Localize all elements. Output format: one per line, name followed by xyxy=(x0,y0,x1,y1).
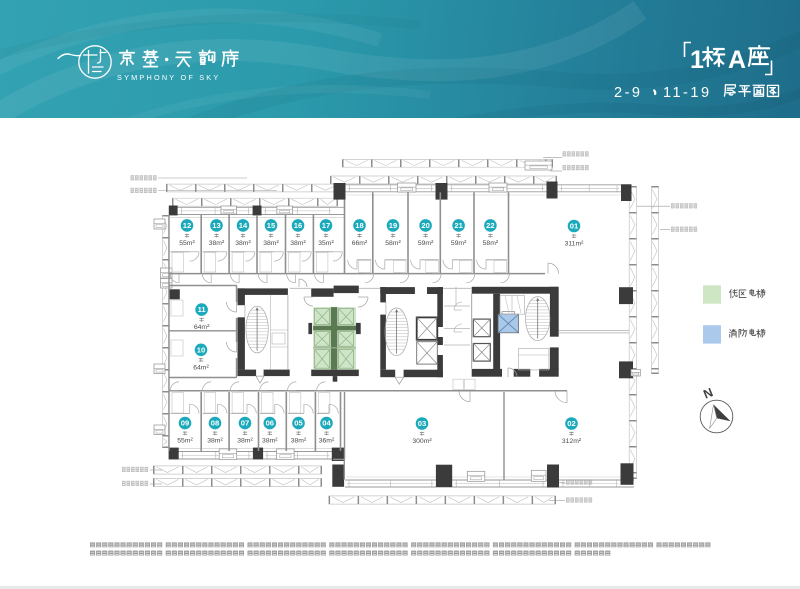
svg-text:19: 19 xyxy=(389,221,397,230)
svg-text:35m²: 35m² xyxy=(318,240,334,247)
svg-text:13: 13 xyxy=(212,221,220,230)
svg-text:38m²: 38m² xyxy=(290,240,306,247)
svg-text:300m²: 300m² xyxy=(412,438,432,445)
svg-text:38m²: 38m² xyxy=(262,438,278,445)
svg-text:59m²: 59m² xyxy=(418,240,434,247)
svg-text:66m²: 66m² xyxy=(352,240,368,247)
svg-text:02: 02 xyxy=(567,419,575,428)
svg-text:15: 15 xyxy=(267,221,276,230)
svg-text:11: 11 xyxy=(198,305,207,314)
svg-text:09: 09 xyxy=(181,419,189,428)
svg-text:38m²: 38m² xyxy=(237,438,253,445)
svg-text:58m²: 58m² xyxy=(483,240,499,247)
svg-text:03: 03 xyxy=(418,419,426,428)
svg-text:64m²: 64m² xyxy=(193,364,209,371)
svg-text:55m²: 55m² xyxy=(179,240,195,247)
svg-text:311m²: 311m² xyxy=(565,241,584,248)
svg-text:01: 01 xyxy=(570,222,579,231)
svg-text:38m²: 38m² xyxy=(235,240,251,247)
svg-text:18: 18 xyxy=(355,221,363,230)
svg-text:312m²: 312m² xyxy=(562,438,582,445)
svg-text:06: 06 xyxy=(266,419,274,428)
svg-text:38m²: 38m² xyxy=(209,240,225,247)
svg-text:04: 04 xyxy=(322,419,331,428)
svg-text:38m²: 38m² xyxy=(291,438,307,445)
svg-text:64m²: 64m² xyxy=(194,324,210,331)
svg-text:21: 21 xyxy=(454,221,463,230)
svg-text:22: 22 xyxy=(486,221,494,230)
svg-text:38m²: 38m² xyxy=(207,438,223,445)
svg-text:36m²: 36m² xyxy=(319,438,335,445)
svg-text:59m²: 59m² xyxy=(451,240,467,247)
svg-text:05: 05 xyxy=(294,419,303,428)
svg-text:12: 12 xyxy=(183,221,191,230)
svg-text:10: 10 xyxy=(197,345,205,354)
svg-text:08: 08 xyxy=(211,419,219,428)
svg-text:58m²: 58m² xyxy=(385,240,401,247)
svg-text:07: 07 xyxy=(241,419,249,428)
svg-text:17: 17 xyxy=(322,221,330,230)
svg-text:16: 16 xyxy=(294,221,302,230)
svg-text:14: 14 xyxy=(239,221,248,230)
svg-text:55m²: 55m² xyxy=(177,438,193,445)
svg-text:38m²: 38m² xyxy=(263,240,279,247)
svg-text:20: 20 xyxy=(421,221,429,230)
